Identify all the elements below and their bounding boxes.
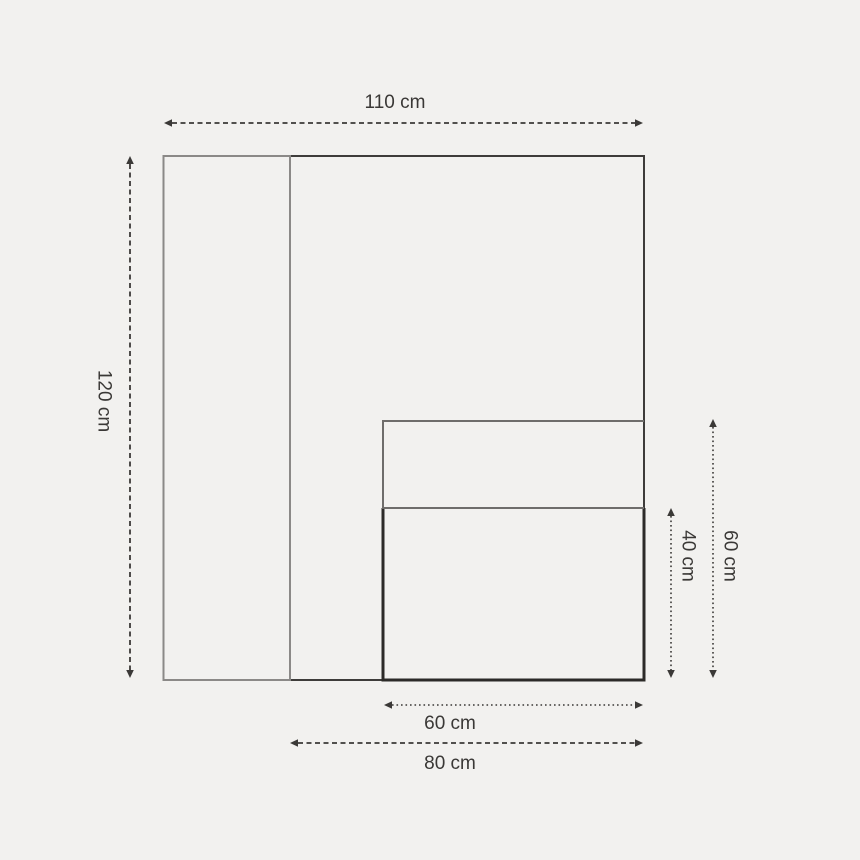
dimension-diagram: 110 cm120 cm40 cm60 cm60 cm80 cm: [0, 0, 860, 860]
dimension-lower-height-label: 40 cm: [678, 530, 699, 582]
dimension-lower-width-label: 80 cm: [424, 753, 476, 774]
diagram-canvas: 110 cm120 cm40 cm60 cm60 cm80 cm: [0, 0, 860, 860]
dimension-total-width-label: 110 cm: [365, 92, 426, 113]
dimension-inner-width-label: 60 cm: [424, 713, 476, 734]
dimension-total-height-label: 120 cm: [94, 370, 115, 432]
dimension-inner-height-label: 60 cm: [720, 530, 741, 582]
